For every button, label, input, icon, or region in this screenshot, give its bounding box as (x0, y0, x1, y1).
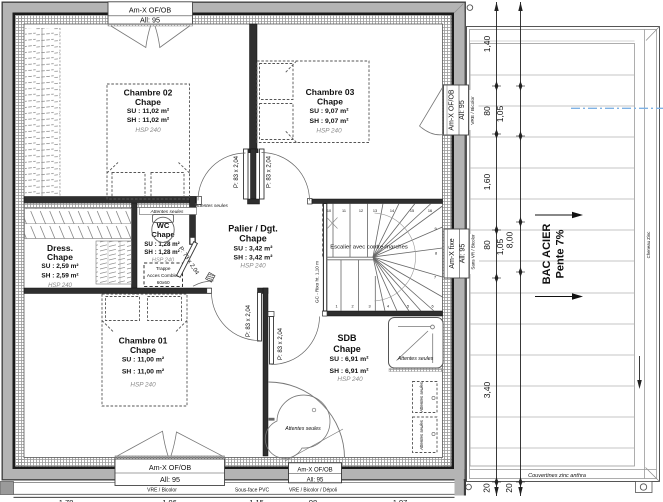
svg-text:1,05: 1,05 (495, 238, 505, 255)
svg-text:13: 13 (373, 209, 377, 213)
svg-text:20: 20 (482, 483, 492, 493)
svg-text:Chape: Chape (333, 344, 361, 354)
svg-text:Escalier avec contre-marches: Escalier avec contre-marches (330, 245, 408, 251)
svg-text:11: 11 (342, 209, 346, 213)
svg-text:Chambre 01: Chambre 01 (119, 336, 168, 346)
svg-text:1,60: 1,60 (482, 173, 492, 190)
svg-text:80: 80 (482, 106, 492, 116)
svg-text:Sans VR / Bicolor: Sans VR / Bicolor (471, 234, 476, 270)
svg-text:80: 80 (482, 240, 492, 250)
svg-text:Am-X OF/OB: Am-X OF/OB (149, 463, 192, 472)
svg-text:14: 14 (390, 209, 394, 213)
svg-text:1,05: 1,05 (495, 105, 505, 122)
svg-text:3: 3 (368, 305, 370, 309)
svg-text:Attentes seules: Attentes seules (419, 381, 424, 413)
svg-text:All: 95: All: 95 (460, 244, 467, 264)
svg-text:Chape: Chape (151, 230, 174, 239)
svg-text:5: 5 (407, 305, 409, 309)
svg-text:P: 83 x 2,04: P: 83 x 2,04 (246, 304, 252, 337)
svg-text:1,40: 1,40 (482, 35, 492, 52)
svg-text:SU : 11,00 m²: SU : 11,00 m² (122, 357, 165, 364)
svg-text:6: 6 (431, 305, 433, 309)
svg-text:Attentes seules: Attentes seules (194, 203, 228, 209)
svg-text:SH : 2,59 m²: SH : 2,59 m² (41, 272, 79, 279)
svg-text:20: 20 (504, 483, 514, 493)
svg-text:Attentes seules: Attentes seules (284, 426, 321, 432)
svg-text:P: 83 x 2,04: P: 83 x 2,04 (267, 155, 273, 188)
svg-text:Chape: Chape (239, 233, 267, 243)
svg-text:Attentes seules: Attentes seules (419, 419, 424, 451)
svg-text:Chape: Chape (47, 252, 73, 262)
svg-text:4: 4 (387, 305, 389, 309)
svg-text:Chape: Chape (135, 97, 161, 107)
svg-text:All: 95: All: 95 (307, 477, 324, 483)
svg-text:VRE / Bicolor / Dépoli: VRE / Bicolor / Dépoli (289, 488, 337, 494)
svg-text:16: 16 (428, 209, 432, 213)
svg-text:12: 12 (359, 209, 363, 213)
svg-text:Couvertines zinc anthra: Couvertines zinc anthra (528, 473, 586, 479)
svg-text:SDB: SDB (337, 333, 357, 343)
svg-text:8,00: 8,00 (505, 231, 515, 248)
svg-text:Cheneau Zinc: Cheneau Zinc (646, 231, 651, 259)
svg-text:BAC ACIER: BAC ACIER (541, 224, 553, 285)
svg-text:SU : 3,42 m²: SU : 3,42 m² (234, 245, 274, 252)
svg-text:SH : 1,28 m²: SH : 1,28 m² (144, 249, 179, 256)
svg-text:All: 95: All: 95 (140, 15, 160, 24)
svg-text:HSP 240: HSP 240 (135, 127, 161, 134)
svg-text:SH : 11,02 m²: SH : 11,02 m² (127, 117, 170, 124)
svg-text:SU : 9,07 m²: SU : 9,07 m² (310, 108, 350, 115)
svg-text:Attentes seules: Attentes seules (397, 356, 434, 362)
svg-text:7: 7 (434, 276, 436, 280)
svg-text:Pente 7%: Pente 7% (555, 229, 567, 278)
svg-text:10: 10 (327, 209, 331, 213)
svg-text:Am-X OF/OB: Am-X OF/OB (129, 6, 172, 15)
svg-text:HSP 240: HSP 240 (337, 376, 363, 383)
svg-text:HSP 240: HSP 240 (130, 381, 156, 388)
svg-text:SH : 9,07 m²: SH : 9,07 m² (310, 118, 350, 125)
svg-text:60x60: 60x60 (157, 280, 170, 285)
svg-text:Chape: Chape (317, 96, 343, 106)
svg-text:98: 98 (309, 498, 317, 502)
svg-text:1: 1 (335, 305, 337, 309)
svg-text:GC - Rixo ht. 1,10 m: GC - Rixo ht. 1,10 m (315, 261, 320, 303)
svg-text:P: 83 x 2,04: P: 83 x 2,04 (234, 155, 240, 188)
svg-text:P: 83 x 2,04: P: 83 x 2,04 (278, 327, 284, 360)
svg-text:Am-X OF/OB: Am-X OF/OB (449, 89, 456, 131)
svg-text:1,78: 1,78 (59, 498, 74, 502)
svg-text:Trappe: Trappe (156, 266, 171, 271)
svg-text:Sous-face PVC: Sous-face PVC (235, 488, 270, 494)
svg-text:All: 95: All: 95 (160, 475, 180, 484)
svg-text:HSP 240: HSP 240 (240, 262, 266, 269)
svg-text:HSP 240: HSP 240 (316, 127, 342, 134)
svg-text:1,97: 1,97 (393, 498, 408, 502)
svg-text:SU : 1,28 m²: SU : 1,28 m² (144, 241, 179, 248)
svg-text:Palier / Dgt.: Palier / Dgt. (228, 224, 278, 234)
svg-text:VRE / Bicolor: VRE / Bicolor (147, 488, 177, 494)
svg-text:15: 15 (410, 209, 414, 213)
svg-text:HSP 240: HSP 240 (152, 257, 175, 263)
svg-text:Am-X fixe: Am-X fixe (449, 238, 456, 268)
svg-text:1,96: 1,96 (162, 498, 177, 502)
svg-text:All: 95: All: 95 (459, 100, 466, 120)
svg-text:HSP 240: HSP 240 (48, 283, 72, 289)
svg-text:8: 8 (435, 252, 437, 256)
svg-text:1,15: 1,15 (249, 498, 264, 502)
svg-text:2: 2 (351, 305, 353, 309)
svg-text:Chape: Chape (130, 345, 156, 355)
svg-text:SU : 11,02 m²: SU : 11,02 m² (127, 108, 170, 115)
svg-text:SU : 2,59 m²: SU : 2,59 m² (41, 263, 79, 270)
svg-text:SU : 6,91 m²: SU : 6,91 m² (330, 356, 370, 363)
svg-text:SH : 11,00 m²: SH : 11,00 m² (122, 369, 165, 376)
svg-text:SH : 6,91 m²: SH : 6,91 m² (330, 368, 370, 375)
svg-text:3,40: 3,40 (482, 381, 492, 398)
svg-text:Acces Combles: Acces Combles (147, 273, 180, 278)
svg-text:VRE / Bicolor: VRE / Bicolor (470, 96, 476, 125)
svg-text:SH : 3,42 m²: SH : 3,42 m² (234, 255, 274, 262)
svg-text:9: 9 (434, 227, 436, 231)
svg-text:Am-X OF/OB: Am-X OF/OB (297, 467, 332, 473)
